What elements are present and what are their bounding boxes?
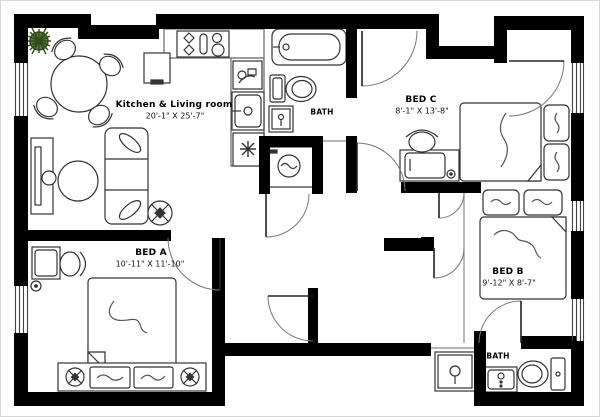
desk-chair (406, 130, 438, 152)
headboard-shelf (58, 363, 206, 391)
door-arc (439, 193, 464, 218)
pillow (134, 367, 173, 388)
coffee-table (58, 161, 98, 201)
bedside-light-icon (66, 368, 84, 386)
floor-plan: Kitchen & Living room 20'-1" X 25'-7" BE… (0, 0, 600, 417)
bed (460, 103, 541, 181)
kitchen-sink (232, 92, 264, 130)
room-label-bath-top: BATH (310, 108, 333, 117)
floor-plan-drawing (1, 1, 600, 417)
pillow (90, 367, 130, 388)
room-dims-bed-c: 8'-1" X 13'-8" (395, 107, 449, 116)
fridge (144, 53, 170, 84)
pillow (544, 105, 569, 141)
room-label-bed-b: BED B (492, 267, 523, 277)
door-arc (357, 143, 405, 191)
room-label-bed-a: BED A (135, 248, 167, 258)
bathtub (272, 29, 346, 65)
bed (88, 278, 176, 369)
toilet (270, 75, 316, 102)
dining-table (51, 56, 107, 112)
room-label-kitchen-living: Kitchen & Living room (116, 100, 233, 110)
bath-sink (269, 106, 293, 132)
ceiling-light-icon (148, 201, 172, 225)
door-arc (266, 194, 309, 237)
bath-sink (485, 367, 517, 392)
pillow (524, 190, 562, 215)
desk (400, 150, 459, 181)
dishwasher (233, 61, 262, 89)
bedside-light-icon (181, 368, 199, 386)
desk (31, 247, 60, 291)
door-arc (362, 31, 417, 86)
toilet (518, 358, 565, 390)
washing-machine (267, 147, 313, 187)
room-dims-bed-b: 9'-12" X 8'-7" (482, 279, 536, 288)
desk-chair (60, 252, 86, 276)
pillow (483, 190, 519, 215)
shower (435, 352, 475, 391)
tv-cabinet (31, 138, 56, 214)
room-label-bath-bottom: BATH (486, 352, 509, 361)
room-dims-bed-a: 10'-11" X 11'-10" (116, 260, 185, 269)
door-arc (434, 248, 464, 278)
room-label-bed-c: BED C (405, 95, 436, 105)
room-dims-kitchen-living: 20'-1" X 25'-7" (146, 112, 205, 121)
pillow (544, 144, 569, 180)
plant-icon (27, 28, 51, 54)
door-arc (268, 296, 313, 341)
sofa (105, 128, 148, 224)
stove (177, 31, 229, 57)
